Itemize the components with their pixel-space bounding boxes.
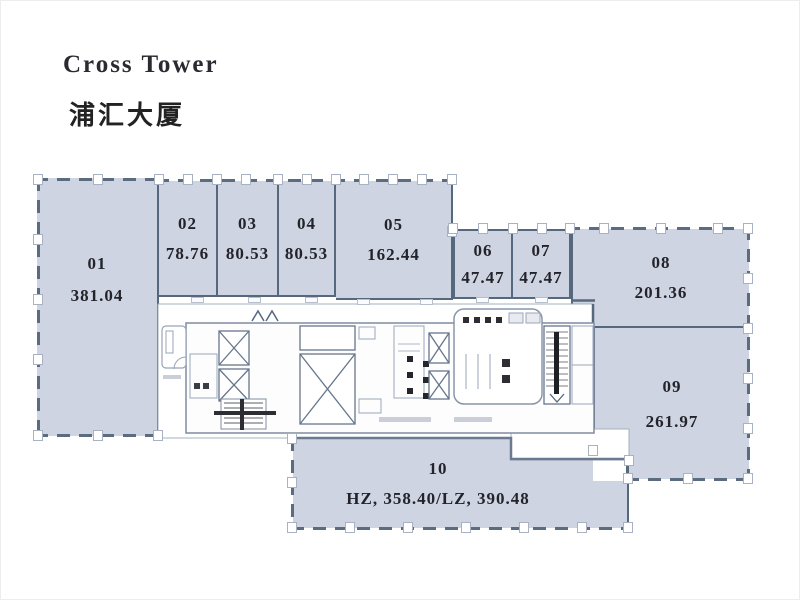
column-tab bbox=[183, 174, 193, 185]
column-tab bbox=[743, 423, 753, 434]
column-tab bbox=[565, 223, 575, 234]
column-tab bbox=[478, 223, 488, 234]
column-tab bbox=[683, 473, 693, 484]
exterior-wall-dashed bbox=[747, 227, 750, 481]
tiny-label bbox=[163, 375, 181, 379]
door-gap bbox=[476, 297, 489, 303]
tiny-label bbox=[379, 417, 431, 422]
column-tab bbox=[287, 477, 297, 488]
column-tab bbox=[33, 294, 43, 305]
column-tab bbox=[93, 174, 103, 185]
column-tab bbox=[241, 174, 251, 185]
column-tab bbox=[287, 433, 297, 444]
column-tab bbox=[588, 445, 598, 456]
column-tab bbox=[331, 174, 341, 185]
column-tab bbox=[577, 522, 587, 533]
stairwell bbox=[544, 326, 570, 404]
column-tab bbox=[33, 234, 43, 245]
unit-number: 01 bbox=[88, 255, 107, 272]
column-tab bbox=[93, 430, 103, 441]
door-gap bbox=[357, 299, 370, 305]
washroom bbox=[454, 309, 542, 404]
door-gap bbox=[535, 297, 548, 303]
unit-area: 162.44 bbox=[367, 246, 420, 263]
column-tab bbox=[33, 354, 43, 365]
column-tab bbox=[519, 522, 529, 533]
exterior-wall-dashed bbox=[37, 178, 40, 438]
column-tab bbox=[743, 223, 753, 234]
column-tab bbox=[388, 174, 398, 185]
machine-room bbox=[300, 326, 355, 424]
unit-area: 78.76 bbox=[166, 245, 209, 262]
column-tab bbox=[743, 323, 753, 334]
unit-01[interactable]: 01 381.04 bbox=[37, 178, 159, 436]
unit-05[interactable]: 05 162.44 bbox=[336, 181, 453, 300]
unit-number: 02 bbox=[178, 215, 197, 232]
column-tab bbox=[743, 473, 753, 484]
column-tab bbox=[302, 174, 312, 185]
unit-02[interactable]: 02 78.76 bbox=[159, 181, 218, 297]
unit-number: 04 bbox=[297, 215, 316, 232]
unit-area: 47.47 bbox=[461, 269, 504, 286]
door-gap bbox=[305, 297, 318, 303]
column-tab bbox=[154, 174, 164, 185]
core-floor-plan bbox=[154, 299, 634, 465]
column-tab bbox=[33, 430, 43, 441]
unit-07[interactable]: 07 47.47 bbox=[513, 229, 571, 299]
unit-area: 201.36 bbox=[635, 284, 688, 301]
column-tab bbox=[537, 223, 547, 234]
column-tab bbox=[345, 522, 355, 533]
column-tab bbox=[33, 174, 43, 185]
column-tab bbox=[461, 522, 471, 533]
column-tab bbox=[273, 174, 283, 185]
door-gap bbox=[420, 299, 433, 305]
column-tab bbox=[287, 522, 297, 533]
building-name-chinese: 浦汇大厦 bbox=[69, 95, 185, 132]
unit-number: 09 bbox=[663, 378, 682, 395]
unit-number: 05 bbox=[384, 216, 403, 233]
unit-area: 47.47 bbox=[519, 269, 562, 286]
column-tab bbox=[508, 223, 518, 234]
column-tab bbox=[417, 174, 427, 185]
column-tab bbox=[359, 174, 369, 185]
column-tab bbox=[623, 473, 633, 484]
unit-area: 381.04 bbox=[71, 287, 124, 304]
tiny-label bbox=[454, 417, 492, 422]
unit-area: 80.53 bbox=[226, 245, 269, 262]
column-tab bbox=[212, 174, 222, 185]
unit-04[interactable]: 04 80.53 bbox=[279, 181, 336, 297]
column-tab bbox=[623, 522, 633, 533]
unit-number: 07 bbox=[532, 242, 551, 259]
door-gap bbox=[191, 297, 204, 303]
unit-06[interactable]: 06 47.47 bbox=[453, 229, 513, 299]
unit-number: 08 bbox=[652, 254, 671, 271]
column-tab bbox=[743, 273, 753, 284]
column-tab bbox=[624, 455, 634, 466]
door-gap bbox=[248, 297, 261, 303]
column-tab bbox=[153, 430, 163, 441]
unit-number: 03 bbox=[238, 215, 257, 232]
unit-03[interactable]: 03 80.53 bbox=[218, 181, 279, 297]
column-tab bbox=[447, 174, 457, 185]
unit-area: HZ, 358.40/LZ, 390.48 bbox=[346, 490, 529, 507]
column-tab bbox=[403, 522, 413, 533]
column-tab bbox=[713, 223, 723, 234]
floor-plan-page: Cross Tower 浦汇大厦 01 381.04 02 78.76 03 8… bbox=[0, 0, 800, 600]
unit-number: 06 bbox=[474, 242, 493, 259]
column-tab bbox=[656, 223, 666, 234]
building-name-english: Cross Tower bbox=[63, 51, 219, 79]
column-tab bbox=[599, 223, 609, 234]
unit-area: 80.53 bbox=[285, 245, 328, 262]
column-tab bbox=[448, 223, 458, 234]
column-tab bbox=[743, 373, 753, 384]
unit-area: 261.97 bbox=[646, 413, 699, 430]
